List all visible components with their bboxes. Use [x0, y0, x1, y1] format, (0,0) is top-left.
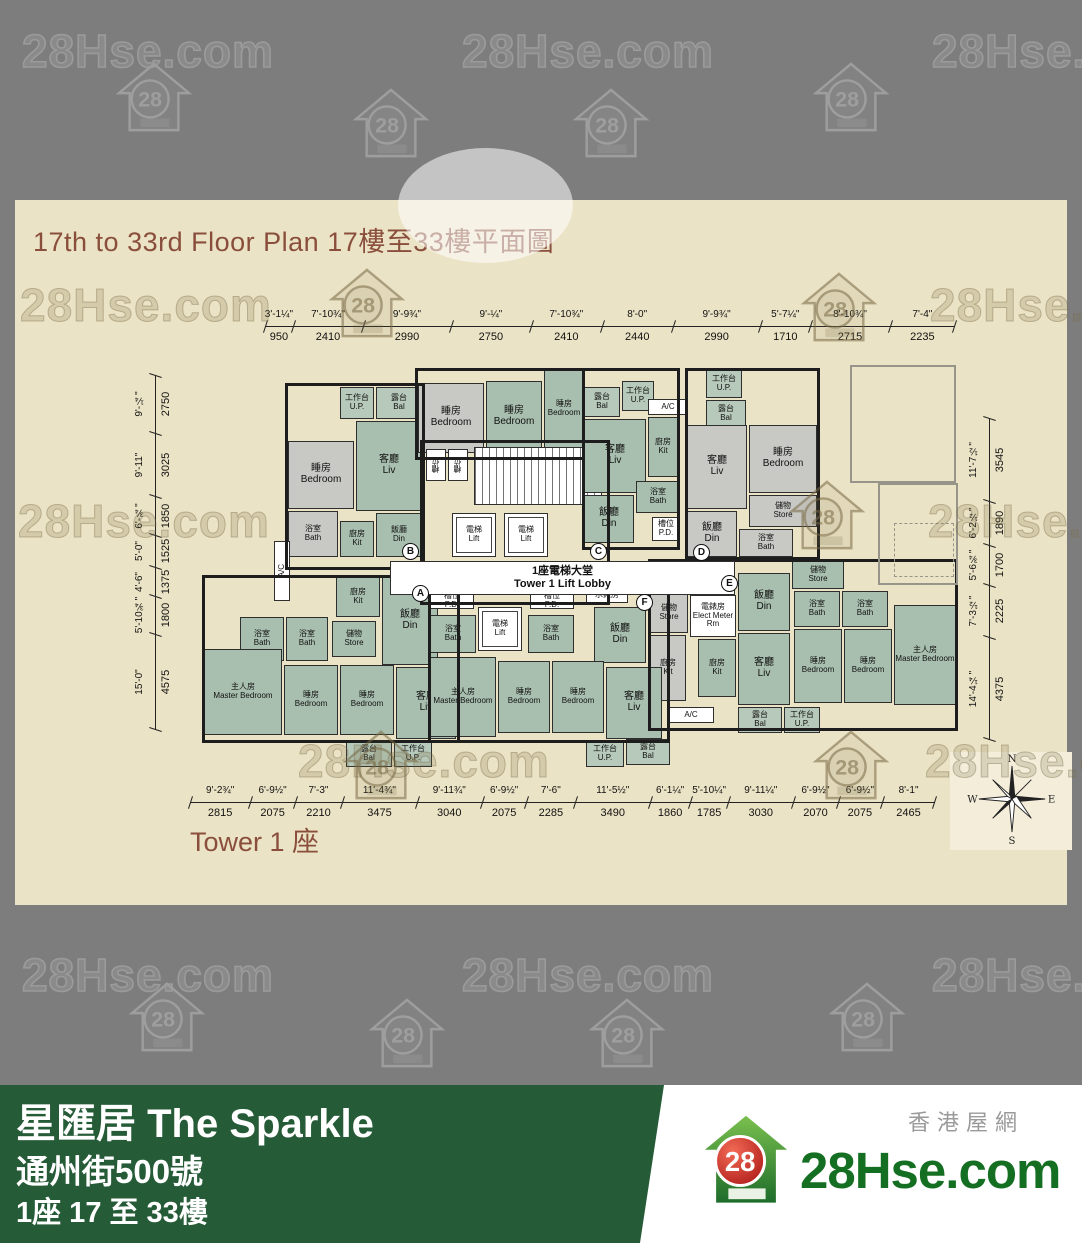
watermark-text: 28Hse.com — [22, 948, 274, 1002]
watermark-text: 28Hse.com — [462, 948, 714, 1002]
dimension-feet: 5'-0" — [134, 541, 145, 561]
room-label-english: Bedroom — [562, 697, 594, 706]
room-bath: 浴室Bath — [288, 511, 338, 557]
room-label-english: P.D. — [545, 601, 560, 609]
room-kit: 廚房Kit — [698, 639, 736, 697]
room-label-english: Bath — [305, 534, 321, 543]
dimension-feet: 9'-9¾" — [702, 309, 730, 320]
dimension-mm: 1700 — [994, 553, 1006, 577]
room-bedroom: 睡房Bedroom — [284, 665, 338, 735]
svg-text:28: 28 — [151, 1008, 175, 1032]
room-label-english: Din — [704, 534, 719, 545]
room-bal: 露台Bal — [376, 387, 422, 419]
room-label-english: U.P. — [350, 403, 365, 412]
room-bedroom: 睡房Bedroom — [749, 425, 817, 493]
dimension-feet: 11'-4¾" — [363, 785, 396, 796]
dimension-segment: 7'-10¾"2410 — [531, 306, 601, 346]
logo-badge-number: 28 — [725, 1146, 756, 1177]
room-master-bedroom: 主人房Master Bedroom — [430, 657, 496, 737]
dimension-mm: 2075 — [260, 807, 284, 819]
dimension-segment: 5'-6¾"1700 — [967, 545, 1013, 585]
dimension-mm: 1375 — [160, 569, 172, 593]
room-label-chinese: 槽位 — [432, 457, 441, 473]
room-label-english: Bedroom — [763, 459, 804, 470]
dimension-feet: 6'-9½" — [801, 785, 829, 796]
room-label-english: Bal — [642, 752, 654, 761]
dimension-mm: 1525 — [160, 539, 172, 563]
dimension-segment: 5'-7¼"1710 — [760, 306, 810, 346]
footer-banner: 星匯居 The Sparkle 通州街500號 1座 17 至 33樓 28 2… — [0, 1085, 1082, 1243]
room-label-english: Bath — [650, 497, 666, 506]
room-label-english: U.P. — [717, 384, 732, 393]
dimension-feet: 6'-9½" — [846, 785, 874, 796]
room-kit: 廚房Kit — [340, 521, 374, 557]
room-bath: 浴室Bath — [286, 617, 328, 661]
room-label-english: Lift — [469, 535, 480, 544]
room-label-english: Bedroom — [431, 418, 472, 429]
dimension-feet: 7'-10¾" — [549, 309, 583, 320]
dimension-segment: 6'-¾"1850 — [133, 496, 179, 535]
dimension-mm: 3490 — [601, 807, 625, 819]
dimension-segment: 14'-4¼"4375 — [967, 637, 1013, 740]
dimension-segment: 9'-11"3025 — [133, 433, 179, 497]
dimension-mm: 2410 — [316, 331, 340, 343]
dimension-feet: 7'-3" — [309, 785, 329, 796]
estate-address: 通州街500號 — [16, 1145, 203, 1193]
estate-name: 星匯居 The Sparkle — [16, 1091, 374, 1149]
dimension-mm: 2990 — [704, 331, 728, 343]
room-label-english: Store — [808, 575, 827, 584]
dimension-feet: 6'-¾" — [134, 503, 145, 528]
compass-north-label: N — [1008, 754, 1017, 765]
room-label-english: Liv — [609, 456, 622, 467]
dimension-feet: 5'-10¾" — [134, 597, 145, 633]
room-label-english: Bedroom — [494, 417, 535, 428]
room-bedroom: 睡房Bedroom — [794, 629, 842, 703]
dimension-mm: 1850 — [160, 503, 172, 527]
room-bath: 浴室Bath — [430, 615, 476, 653]
room-label-english: Liv — [711, 467, 724, 478]
room-lift: 電梯Lift — [504, 513, 548, 557]
room-label-english: Bedroom — [548, 409, 580, 418]
svg-text:28: 28 — [611, 1024, 635, 1048]
room-bedroom: 睡房Bedroom — [486, 381, 542, 453]
room-label-english: Bedroom — [852, 666, 884, 675]
room-kit: 廚房Kit — [648, 417, 678, 477]
dimension-segment: 15'-0"4575 — [133, 634, 179, 730]
room-label-english: Bath — [809, 609, 825, 618]
room-label-english: Master Bedroom — [433, 697, 492, 706]
dimension-feet: 5'-10¼" — [692, 785, 726, 796]
room-label-english: Din — [612, 635, 627, 646]
adjacent-building-outline — [850, 365, 956, 483]
dimension-feet: 7'-10¾" — [311, 309, 345, 320]
room-label-english: Din — [756, 602, 771, 613]
compass-south-label: S — [1009, 836, 1016, 845]
compass-west-label: W — [967, 795, 978, 806]
dimension-segment: 9'-9¾"2990 — [673, 306, 760, 346]
dimension-feet: 3'-1¼" — [265, 309, 293, 320]
room-label-english: Store — [659, 613, 678, 622]
room-bath: 浴室Bath — [842, 591, 888, 627]
room-bath: 浴室Bath — [528, 615, 574, 653]
dimension-segment: 8'-10¾"2715 — [810, 306, 889, 346]
dimension-segment: 9'-9¾"2990 — [363, 306, 450, 346]
svg-text:28: 28 — [851, 1008, 875, 1032]
room-label-chinese: 槽位 — [454, 457, 463, 473]
dimension-mm: 2990 — [395, 331, 419, 343]
dimension-feet: 7'-3½" — [968, 596, 979, 627]
dimension-mm: 2285 — [539, 807, 563, 819]
room-label-english: Din — [393, 535, 405, 544]
room-bal: 露台Bal — [626, 739, 670, 765]
adjacent-building-outline — [894, 523, 954, 577]
dimension-segment: 7'-6"2285 — [526, 782, 575, 822]
room-din: 飯廳Din — [584, 495, 634, 543]
dimension-feet: 9'-9¾" — [393, 309, 421, 320]
dimension-feet: 14'-4¼" — [968, 670, 979, 706]
room-label-english: Kit — [712, 668, 721, 677]
title-chinese: 17樓至33樓平面圖 — [327, 227, 554, 257]
dimension-segment: 5'-10¼"1785 — [690, 782, 728, 822]
dimension-mm: 1890 — [994, 511, 1006, 535]
dimension-feet: 7'-4" — [912, 309, 932, 320]
room-label-english: Bal — [720, 414, 732, 423]
room-din: 飯廳Din — [594, 607, 646, 663]
room-store: 儲物Store — [650, 593, 688, 633]
room-pd-shaft: 槽位P.D. — [652, 517, 680, 541]
room-label-english: Din — [601, 519, 616, 530]
dimension-segment: 11'-7½"3545 — [967, 418, 1013, 501]
dimension-segment: 6'-1¼"1860 — [650, 782, 690, 822]
room-store: 儲物Store — [749, 495, 817, 527]
unit-letter-d: D — [693, 544, 710, 561]
watermark-house-icon: 28 — [352, 86, 430, 165]
room-bedroom: 睡房Bedroom — [544, 370, 584, 448]
room-label-english: Liv — [758, 669, 771, 680]
room-label-english: Bedroom — [351, 700, 383, 709]
room-lift: 電梯Lift — [478, 607, 522, 651]
room-label-english: Bal — [393, 403, 405, 412]
dimension-mm: 4375 — [994, 676, 1006, 700]
svg-text:28: 28 — [375, 114, 399, 138]
dimension-segment: 11'-4¾"3475 — [342, 782, 417, 822]
dimension-mm: 1785 — [697, 807, 721, 819]
dimension-segment: 8'-1"2465 — [882, 782, 935, 822]
room-label-english: U.P. — [598, 754, 613, 763]
room-label-english: A/C — [278, 564, 287, 577]
room-kit: 廚房Kit — [336, 577, 380, 617]
room-label-english: Kit — [352, 539, 361, 548]
dimension-feet: 9'-2¾" — [206, 785, 234, 796]
dimension-feet: 8'-10¾" — [833, 309, 867, 320]
logo-tagline: 香港屋網 — [908, 1105, 1024, 1137]
room-bal: 露台Bal — [584, 387, 620, 417]
watermark-house-icon: 28 — [368, 996, 446, 1075]
dimension-mm: 1710 — [773, 331, 797, 343]
dimension-mm: 2440 — [625, 331, 649, 343]
room-pd-shaft: 槽位 — [426, 449, 446, 481]
dimension-mm: 2465 — [896, 807, 920, 819]
room-bedroom: 睡房Bedroom — [844, 629, 892, 703]
estate-floors: 1座 17 至 33樓 — [16, 1189, 208, 1231]
room-din: 飯廳Din — [738, 573, 790, 631]
svg-text:28: 28 — [595, 114, 619, 138]
room-liv: 客廳Liv — [738, 633, 790, 705]
room-label-english: Store — [773, 511, 792, 520]
dimension-mm: 2410 — [554, 331, 578, 343]
title-english: 17th to 33rd Floor Plan — [33, 227, 319, 257]
dimension-segment: 9'-¼"2750 — [133, 375, 179, 433]
dimension-feet: 8'-1" — [899, 785, 919, 796]
room-label-english: Kit — [658, 447, 667, 456]
room-u-p: 工作台U.P. — [340, 387, 374, 419]
dimension-mm: 2750 — [160, 392, 172, 416]
room-store: 儲物Store — [792, 561, 844, 589]
dimension-segment: 6'-9½"2070 — [793, 782, 837, 822]
watermark-text: 28Hse.com — [932, 948, 1082, 1002]
room-label-english: U.P. — [406, 754, 421, 763]
room-ac-platform: A/C — [648, 399, 688, 415]
room-label-english: Liv — [628, 703, 641, 714]
dimension-segment: 5'-0"1525 — [133, 535, 179, 567]
room-label-english: A/C — [661, 403, 674, 412]
room-ac-platform: A/C — [668, 707, 714, 723]
room-label-english: Bal — [754, 720, 766, 729]
unit-letter-b: B — [402, 543, 419, 560]
dimension-feet: 9'-11" — [134, 452, 145, 477]
page: 17th to 33rd Floor Plan 17樓至33樓平面圖 3'-1¼… — [0, 0, 1082, 1243]
watermark-house-icon: 28 — [828, 980, 906, 1059]
dimension-feet: 9'-¼" — [480, 309, 503, 320]
dimension-feet: 7'-6" — [541, 785, 561, 796]
room-label-english: Kit — [663, 668, 672, 677]
room-pd-shaft: 槽位P.D. — [530, 593, 574, 609]
dimension-chain-right: 11'-7½"35456'-2½"18905'-6¾"17007'-3½"222… — [967, 418, 1013, 740]
dimension-feet: 9'-11¼" — [744, 785, 777, 796]
adjacent-building-outline — [878, 483, 958, 585]
room-label-english: Bath — [543, 634, 559, 643]
dimension-mm: 2715 — [838, 331, 862, 343]
dimension-feet: 8'-0" — [627, 309, 647, 320]
dimension-segment: 9'-¼"2750 — [451, 306, 531, 346]
logo-house-icon: 28 — [697, 1109, 795, 1209]
compass-rose: N S W E — [966, 753, 1058, 845]
room-label-english: Store — [344, 639, 363, 648]
watermark-house-icon: 28 — [588, 996, 666, 1075]
dimension-mm: 3030 — [749, 807, 773, 819]
room-bath: 浴室Bath — [739, 529, 793, 557]
dimension-segment: 3'-1¼"950 — [265, 306, 293, 346]
dimension-segment: 9'-2¾"2815 — [190, 782, 250, 822]
room-pd-shaft: 槽位P.D. — [430, 593, 474, 609]
unit-letter-a: A — [412, 585, 429, 602]
room-staircase — [474, 447, 602, 505]
room-label-english: Bath — [445, 634, 461, 643]
room-liv: 客廳Liv — [606, 667, 662, 739]
room-label-english: Bedroom — [301, 475, 342, 486]
dimension-feet: 4'-6" — [134, 572, 145, 592]
dimension-segment: 7'-10¾"2410 — [293, 306, 363, 346]
room-u-p: 工作台U.P. — [706, 370, 742, 398]
room-label-english: Lift — [495, 629, 506, 638]
lobby-label-chinese: 1座電梯大堂 — [532, 565, 593, 578]
dimension-mm: 4575 — [160, 670, 172, 694]
dimension-feet: 11'-5½" — [596, 785, 629, 796]
dimension-feet: 6'-1¼" — [656, 785, 684, 796]
room-label-english: Bedroom — [295, 700, 327, 709]
dimension-feet: 5'-7¼" — [771, 309, 799, 320]
room-bedroom: 睡房Bedroom — [340, 665, 394, 735]
dimension-mm: 2070 — [803, 807, 827, 819]
room-master-bedroom: 主人房Master Bedroom — [204, 649, 282, 735]
svg-text:28: 28 — [138, 88, 162, 112]
watermark-text: 28Hse.com — [22, 24, 274, 78]
room-store: 儲物Store — [332, 621, 376, 657]
room-label-english: U.P. — [631, 396, 646, 405]
dimension-segment: 8'-0"2440 — [602, 306, 673, 346]
dimension-mm: 2075 — [848, 807, 872, 819]
dimension-segment: 7'-3½"2225 — [967, 585, 1013, 637]
room-label-english: P.D. — [445, 601, 460, 609]
page-title: 17th to 33rd Floor Plan 17樓至33樓平面圖 — [33, 220, 554, 259]
unit-letter-c: C — [590, 543, 607, 560]
room-label-english: U.P. — [795, 720, 810, 729]
room-bath: 浴室Bath — [636, 481, 680, 513]
room-elect-meter-room: 電錶房Elect Meter Rm — [690, 595, 736, 637]
compass-east-label: E — [1048, 795, 1055, 806]
room-ac-platform: A/C — [274, 541, 290, 601]
dimension-chain-top: 3'-1¼"9507'-10¾"24109'-9¾"29909'-¼"27507… — [265, 306, 955, 346]
svg-text:28: 28 — [835, 88, 859, 112]
room-label-english: Bedroom — [508, 697, 540, 706]
room-label-english: Bath — [254, 639, 270, 648]
room-label-english: Bedroom — [802, 666, 834, 675]
room-label-english: Bath — [299, 639, 315, 648]
room-label-english: P.D. — [659, 529, 674, 538]
dimension-mm: 2210 — [306, 807, 330, 819]
room-liv: 客廳Liv — [687, 425, 747, 509]
lobby-label-english: Tower 1 Lift Lobby — [514, 578, 611, 591]
room-pd-shaft: 槽位 — [448, 449, 468, 481]
room-label-english: Din — [402, 621, 417, 632]
room-bath: 浴室Bath — [794, 591, 840, 627]
svg-text:28: 28 — [391, 1024, 415, 1048]
floor-plan: 1座電梯大堂 Tower 1 Lift Lobby 工作台U.P.露台Bal睡房… — [190, 365, 960, 775]
floor-plan-card: 17th to 33rd Floor Plan 17樓至33樓平面圖 3'-1¼… — [15, 200, 1067, 905]
dimension-segment: 6'-9½"2075 — [250, 782, 294, 822]
room-label-english: Elect Meter Rm — [691, 612, 735, 629]
watermark-text: 28Hse.com — [462, 24, 714, 78]
dimension-feet: 11'-7½" — [968, 442, 979, 478]
room-master-bedroom: 主人房Master Bedroom — [894, 605, 956, 705]
dimension-mm: 3475 — [367, 807, 391, 819]
watermark-house-icon: 28 — [812, 60, 890, 139]
room-label-english: Bath — [758, 543, 774, 552]
dimension-chain-bottom: 9'-2¾"28156'-9½"20757'-3"221011'-4¾"3475… — [190, 782, 935, 822]
dimension-feet: 9'-¼" — [134, 391, 145, 416]
dimension-mm: 2235 — [910, 331, 934, 343]
dimension-segment: 9'-11¾"3040 — [417, 782, 482, 822]
room-bal: 露台Bal — [346, 741, 392, 767]
room-u-p: 工作台U.P. — [586, 741, 624, 767]
room-bal: 露台Bal — [706, 400, 746, 428]
room-u-p: 工作台U.P. — [784, 707, 820, 733]
dimension-mm: 3545 — [994, 447, 1006, 471]
dimension-feet: 6'-9½" — [258, 785, 286, 796]
dimension-feet: 6'-9½" — [490, 785, 518, 796]
dimension-segment: 7'-3"2210 — [295, 782, 342, 822]
room-bedroom: 睡房Bedroom — [552, 661, 604, 733]
dimension-mm: 2225 — [994, 599, 1006, 623]
dimension-mm: 1800 — [160, 603, 172, 627]
room-label-english: Lift — [521, 535, 532, 544]
room-label-english: Bath — [857, 609, 873, 618]
dimension-segment: 7'-4"2235 — [890, 306, 955, 346]
dimension-segment: 9'-11¼"3030 — [728, 782, 793, 822]
room-bal: 露台Bal — [738, 707, 782, 733]
watermark-house-icon: 28 — [572, 86, 650, 165]
room-label-english: Bal — [363, 754, 375, 763]
room-label-english: Liv — [383, 466, 396, 477]
room-bedroom: 睡房Bedroom — [288, 441, 354, 509]
room-label-english: A/C — [684, 711, 697, 720]
dimension-segment: 6'-2½"1890 — [967, 501, 1013, 545]
dimension-mm: 3040 — [437, 807, 461, 819]
watermark-house-icon: 28 — [128, 980, 206, 1059]
room-liv: 客廳Liv — [356, 421, 422, 511]
watermark-text: 28Hse.com — [932, 24, 1082, 78]
tower-label: Tower 1 座 — [190, 820, 319, 859]
dimension-segment: 6'-9½"2075 — [482, 782, 526, 822]
room-label-english: Master Bedroom — [895, 655, 954, 664]
room-bedroom: 睡房Bedroom — [418, 383, 484, 453]
room-label-english: Kit — [353, 597, 362, 606]
lift-lobby-label: 1座電梯大堂 Tower 1 Lift Lobby — [390, 561, 735, 595]
dimension-mm: 950 — [270, 331, 288, 343]
dimension-mm: 1860 — [658, 807, 682, 819]
dimension-segment: 5'-10¾"1800 — [133, 596, 179, 634]
dimension-feet: 9'-11¾" — [433, 785, 466, 796]
dimension-feet: 15'-0" — [134, 669, 145, 694]
dimension-chain-left: 9'-¼"27509'-11"30256'-¾"18505'-0"15254'-… — [133, 375, 179, 730]
room-u-p: 工作台U.P. — [394, 741, 432, 767]
unit-letter-f: F — [636, 594, 653, 611]
dimension-mm: 2815 — [208, 807, 232, 819]
logo-wordmark[interactable]: 28Hse.com — [800, 1141, 1060, 1200]
room-lift: 電梯Lift — [452, 513, 496, 557]
room-bedroom: 睡房Bedroom — [498, 661, 550, 733]
dimension-segment: 6'-9½"2075 — [838, 782, 882, 822]
dimension-segment: 11'-5½"3490 — [575, 782, 650, 822]
estate-name-english: The Sparkle — [147, 1102, 374, 1146]
room-label-english: Master Bedroom — [213, 692, 272, 701]
dimension-feet: 6'-2½" — [968, 508, 979, 539]
dimension-feet: 5'-6¾" — [968, 550, 979, 581]
room-label-english: Bal — [596, 402, 608, 411]
unit-letter-e: E — [721, 575, 738, 592]
dimension-mm: 3025 — [160, 452, 172, 476]
dimension-mm: 2750 — [479, 331, 503, 343]
estate-name-chinese: 星匯居 — [16, 1102, 136, 1146]
dimension-segment: 4'-6"1375 — [133, 567, 179, 596]
watermark-house-icon: 28 — [115, 60, 193, 139]
dimension-mm: 2075 — [492, 807, 516, 819]
